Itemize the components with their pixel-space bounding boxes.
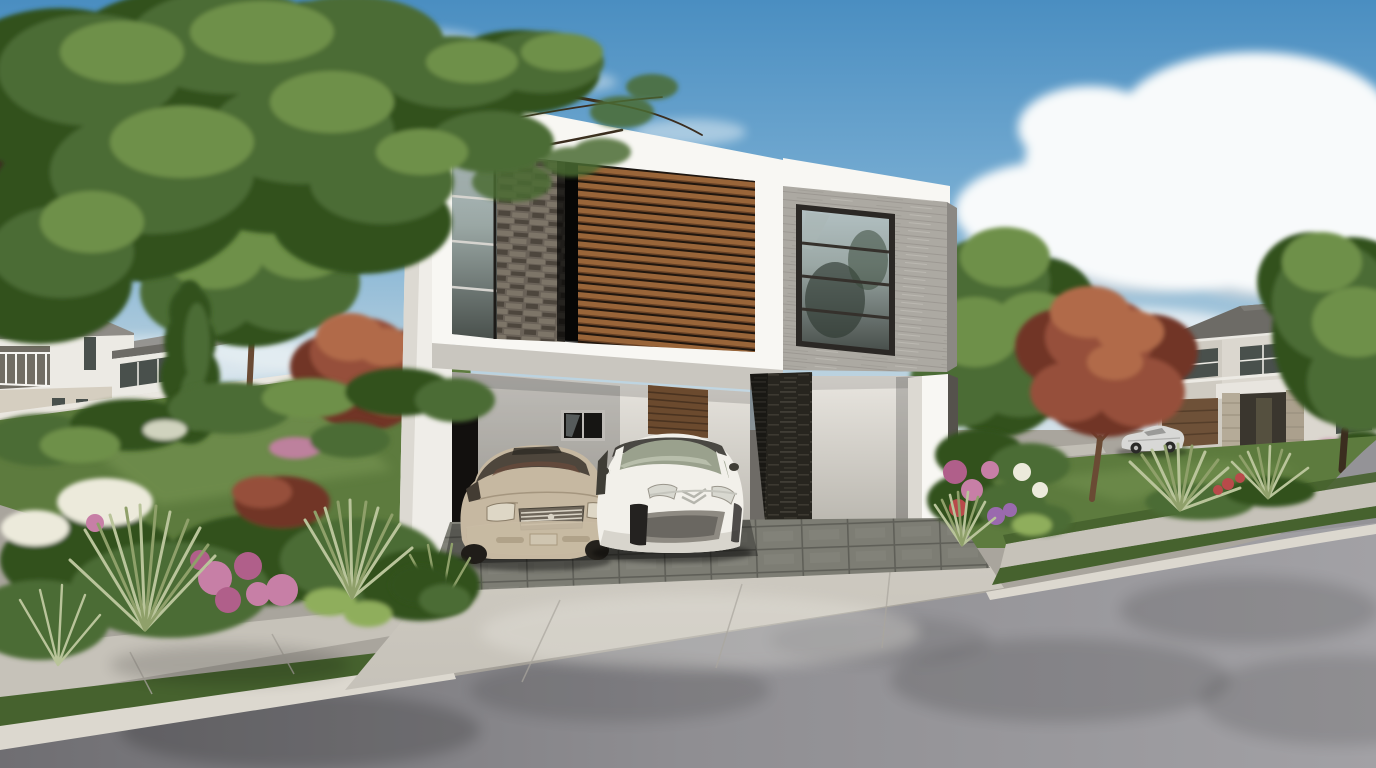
entry-door-wood-louver	[648, 385, 708, 438]
stone-pier-shadow	[557, 161, 578, 343]
house-rendering	[0, 0, 1376, 768]
concrete-side	[947, 202, 957, 372]
concrete-volume	[783, 186, 957, 372]
picture-window	[796, 204, 895, 356]
wood-slat-facade	[578, 164, 755, 352]
